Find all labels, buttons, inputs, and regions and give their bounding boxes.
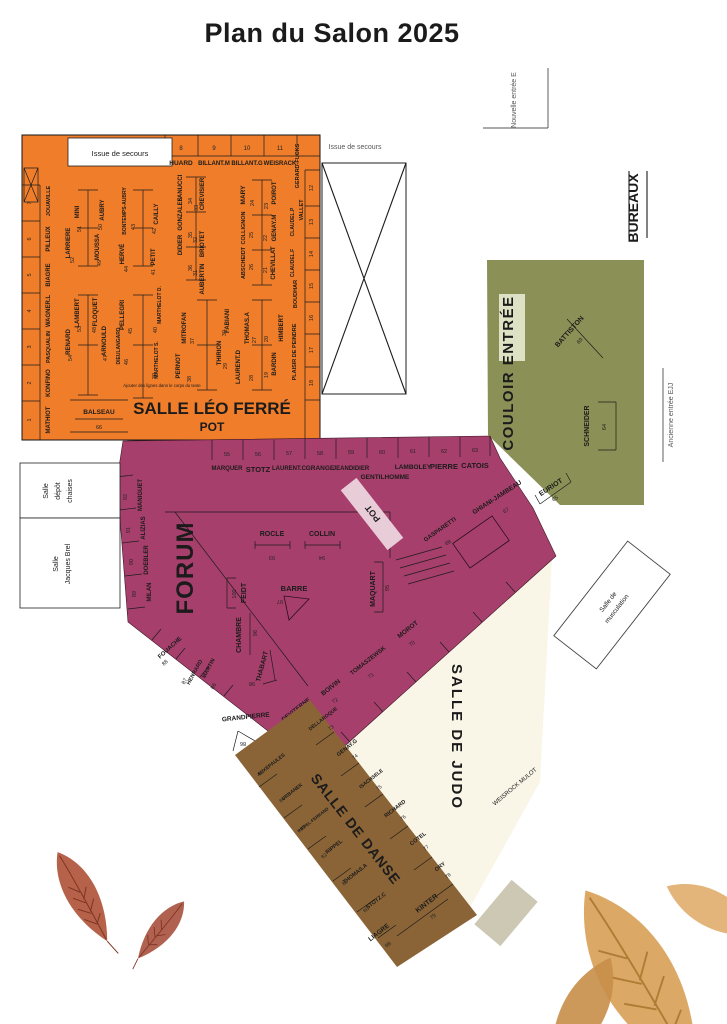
booth-number: 42 [152, 228, 158, 234]
booth-number: 53 [77, 326, 83, 332]
floor-plan-page: Plan du Salon 2025 Issue de secours SALL… [0, 0, 727, 1024]
exit-structure: Issue de secours [322, 144, 406, 394]
booth-name: MARY [240, 185, 247, 205]
booth-number: 17 [309, 347, 315, 353]
booth-name: BRIOTET [200, 231, 206, 258]
booth-number: 23 [264, 203, 270, 209]
booth-name: GONZALES [178, 197, 184, 230]
booth-number: 98 [249, 680, 255, 686]
booth-name: BARRE [281, 584, 308, 593]
booth-number: 38 [187, 376, 193, 382]
booth-name: CREVISIER [200, 177, 206, 210]
booth-name: MATHIOT [46, 406, 52, 433]
booth-name: HIMBERT [279, 314, 285, 342]
gray-block [474, 880, 537, 946]
booth-number: 39 [152, 373, 158, 379]
booth-number: 66 [96, 425, 102, 431]
booth-name: POIROT [272, 181, 278, 204]
zone-title: FORUM [172, 522, 199, 615]
booth-number: 30 [222, 330, 228, 336]
booth-number: 28 [249, 375, 255, 381]
booth-name: CHEVILLAT [271, 246, 277, 280]
booth-number: 62 [441, 449, 447, 455]
booth-number: 45 [128, 328, 134, 334]
entrance-label: Nouvelle entrée E [511, 72, 518, 128]
booth-number: 86 [240, 740, 246, 746]
booth-name: DOEBLER [144, 545, 150, 575]
room-musculation: Salle de musculation [554, 541, 670, 669]
booth-number: 10 [244, 146, 251, 152]
booth-number: 47 [103, 355, 109, 361]
booth-number: 31 [193, 270, 199, 276]
entrance-label: Ancienne entrée EJJ [668, 383, 675, 448]
exit-label: Issue de secours [329, 144, 382, 151]
booth-number: 7 [27, 201, 33, 204]
booth-number: 46 [124, 359, 130, 365]
booth-name: CLAUDEL.P [290, 207, 296, 236]
booth-number: 25 [249, 232, 255, 238]
booth-name: MARQUER [212, 466, 244, 472]
booth-name: MOUSSA [95, 233, 101, 260]
leaf-shape [659, 869, 727, 951]
exit-label: Issue de secours [92, 149, 149, 158]
booth-name: BONTEMPS-AUBRY [122, 187, 128, 235]
booth-number: 33 [194, 205, 200, 211]
booth-number: 97 [277, 598, 283, 604]
booth-name: COLLIGNON [241, 211, 247, 244]
booth-name: JOUAVILLE [46, 185, 52, 216]
room-label: chaises [67, 479, 74, 503]
zone-salle-leo-ferre: Issue de secours SALLE LÉO FERRÉ POT Ajo… [22, 135, 320, 440]
booth-number: 15 [309, 283, 315, 289]
zone-title: COULOIR ENTRÉE [500, 295, 517, 450]
booth-number: 61 [410, 449, 416, 455]
booth-number: 43 [131, 224, 137, 230]
room-label: Salle [53, 556, 60, 572]
booth-number: 41 [151, 269, 157, 275]
booth-name: LAURENT.C [272, 466, 307, 472]
booth-number: 4 [27, 309, 33, 312]
zone-couloir-entree: COULOIR ENTRÉE BATTISTON 69 SCHNEIDER 64… [487, 260, 644, 505]
booth-number: 13 [309, 219, 315, 225]
booth-name: DIDIER [178, 234, 184, 255]
booth-name: MINI [75, 205, 81, 218]
booth-name: GRANGE [306, 465, 335, 472]
booth-number: 21 [263, 267, 269, 273]
booth-number: 22 [263, 235, 269, 241]
booth-number: 90 [129, 559, 135, 565]
booth-number: 44 [124, 266, 130, 272]
booth-name: BALSEAU [83, 409, 115, 416]
booth-name: PERNOT [176, 353, 182, 378]
booth-number: 94 [319, 554, 325, 560]
booth-number: 19 [264, 372, 270, 378]
booth-number: 29 [223, 363, 229, 369]
booth-number: 96 [253, 630, 259, 636]
zone-shape [22, 135, 320, 440]
booth-number: 54 [68, 355, 74, 361]
booth-name: LAURENT.D [236, 349, 242, 384]
booth-name: KONFINO [46, 369, 52, 397]
booth-number: 40 [153, 327, 159, 333]
booth-name: LAMBOLEY [395, 464, 432, 471]
booth-number: 59 [348, 450, 354, 456]
booth-name: ARNOULD [102, 325, 108, 356]
booth-number: 64 [602, 424, 608, 430]
booth-number: 16 [309, 315, 315, 321]
booth-name: BIAGRE [46, 263, 52, 286]
booth-number: 14 [309, 251, 315, 257]
booth-name: CLAUDEL.F [290, 249, 296, 277]
booth-name: ALIZIAS [141, 516, 147, 539]
booth-name: MARTHELOT D. [157, 286, 163, 324]
booth-number: 91 [126, 527, 132, 533]
booth-name: PIERRE [430, 462, 458, 471]
booth-name: PILLEUX [46, 226, 52, 251]
booth-name: AUBERTIN [200, 264, 206, 295]
leaf-decoration-right [533, 869, 727, 1024]
booth-name: FANUCCI [178, 174, 184, 201]
booth-number: 27 [252, 337, 258, 343]
booth-name: PASQUALIN [46, 331, 52, 363]
booth-number: 24 [250, 200, 256, 206]
booth-name: GENAY.M [272, 215, 278, 242]
booth-number: 92 [123, 494, 129, 500]
booth-name: PLAISIR DE PEINDRE [292, 323, 298, 380]
booth-number: 95 [385, 585, 391, 591]
booth-name: COLLIN [309, 531, 335, 538]
booth-name: MITROFAN [182, 312, 188, 343]
page-title: Plan du Salon 2025 [204, 18, 459, 48]
booth-name: BILLANT.M [198, 161, 230, 167]
booth-name: GENTILHOMME [361, 474, 410, 481]
bureaux-label: BUREAUX [625, 173, 641, 243]
booth-number: 57 [286, 451, 292, 457]
booth-number: 6 [27, 237, 33, 240]
booth-name: VALLET [299, 199, 305, 221]
booth-name: BARDIN [272, 352, 278, 375]
booth-name: FLOQUET [93, 297, 99, 326]
booth-name: LARRIERE [66, 228, 72, 259]
booth-number: 52 [70, 257, 76, 263]
booth-name: MAQUART [370, 570, 377, 606]
booth-name: CHAMBRE [236, 617, 243, 653]
zone-subtitle: POT [200, 420, 225, 434]
placeholder-note: Ajouter des lignes dans le corps du text… [123, 383, 201, 388]
booth-name: ABSCHEIDT [241, 246, 247, 279]
booth-number: 100 [232, 589, 238, 598]
booth-number: 37 [190, 338, 196, 344]
booth-name: THIRION [217, 341, 223, 366]
booth-number: 32 [193, 237, 199, 243]
booth-name: FEIDT [241, 582, 248, 603]
booth-number: 12 [309, 185, 315, 191]
booth-name: RENARD [66, 329, 72, 355]
booth-name: JEANDIDIER [333, 466, 370, 472]
zone-title: SALLE LÉO FERRÉ [133, 399, 291, 418]
booth-name: HUARD [169, 160, 193, 167]
booth-number: 26 [249, 264, 255, 270]
booth-name: CAILLY [154, 203, 160, 224]
booth-number: 58 [317, 451, 323, 457]
booth-name: GERARD-FUCKS [295, 143, 301, 188]
room-label: Jacques Brel [65, 543, 72, 584]
booth-number: 50 [98, 224, 104, 230]
booth-number: 20 [264, 336, 270, 342]
booth-number: 89 [132, 591, 138, 597]
booth-name: LAMBERT [75, 298, 81, 328]
booth-number: 3 [27, 345, 33, 348]
room-label: dépôt [55, 482, 62, 500]
booth-name: DIEULANGARD [116, 327, 122, 364]
room-label: Salle [43, 483, 50, 499]
floor-plan-canvas: Plan du Salon 2025 Issue de secours SALL… [0, 0, 727, 1024]
booth-number: 55 [224, 452, 230, 458]
booth-number: 93 [269, 554, 275, 560]
booth-name: HERVÉ [118, 244, 126, 265]
booth-number: 48 [92, 327, 98, 333]
booth-number: 88 [161, 659, 170, 668]
booth-number: 51 [77, 226, 83, 232]
booth-name: MILAN [147, 583, 153, 602]
booth-name: WEISRACK [264, 161, 297, 167]
booth-number: 60 [379, 450, 385, 456]
booth-name: MANIGUET [138, 479, 144, 511]
booth-name: ROCLE [260, 531, 285, 538]
booth-name: BOUDHAR [293, 280, 299, 308]
booth-name: AUBRY [100, 199, 106, 220]
booth-name: STOTZ [246, 465, 271, 474]
booth-name: THOMAS.A [245, 311, 251, 344]
booth-name: BILLANT.G [231, 161, 263, 167]
booth-number: 11 [277, 146, 284, 152]
zone-title: SALLE DE JUDO [448, 664, 465, 810]
booth-number: 56 [255, 452, 261, 458]
booth-name: PELLEGRI [120, 300, 126, 330]
booth-name: SCHNEIDER [584, 405, 591, 446]
booth-number: 18 [309, 380, 315, 386]
booth-name: CATOIS [461, 461, 489, 470]
leaf-decoration-left [45, 844, 193, 974]
booth-number: 1 [27, 418, 33, 421]
booth-number: 5 [27, 273, 33, 276]
booth-number: 49 [97, 260, 103, 266]
booth-number: 63 [472, 448, 478, 454]
booth-number: 2 [27, 381, 33, 384]
booth-name: FABIANI [225, 309, 231, 333]
booth-number: 34 [188, 198, 194, 204]
booth-name: PETIT [151, 248, 157, 265]
booth-name: WAGNER.L [46, 295, 52, 328]
